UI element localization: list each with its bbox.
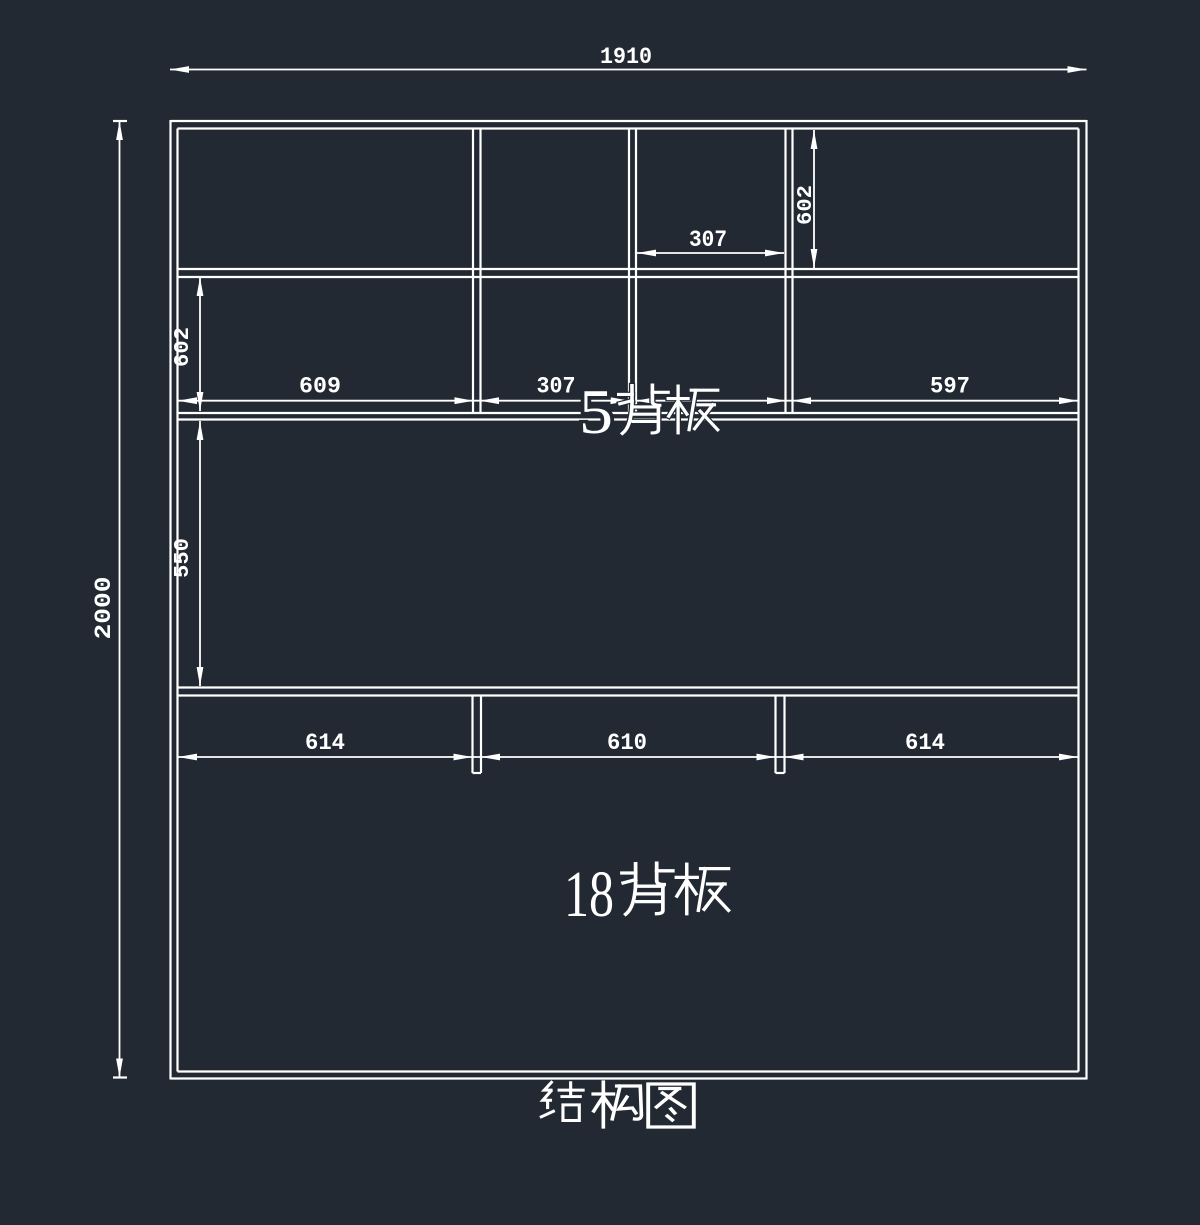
svg-text:602: 602 [795, 185, 818, 225]
svg-text:550: 550 [172, 538, 195, 578]
svg-text:5: 5 [579, 377, 613, 447]
svg-text:614: 614 [305, 730, 345, 756]
svg-text:307: 307 [537, 374, 576, 400]
svg-text:2000: 2000 [91, 577, 117, 640]
svg-text:610: 610 [607, 730, 647, 756]
svg-text:602: 602 [172, 327, 195, 367]
svg-text:614: 614 [905, 730, 945, 756]
svg-text:307: 307 [689, 227, 727, 253]
svg-text:609: 609 [299, 374, 341, 400]
svg-text:1910: 1910 [600, 44, 652, 70]
svg-text:18: 18 [564, 858, 614, 931]
svg-text:597: 597 [930, 374, 970, 400]
